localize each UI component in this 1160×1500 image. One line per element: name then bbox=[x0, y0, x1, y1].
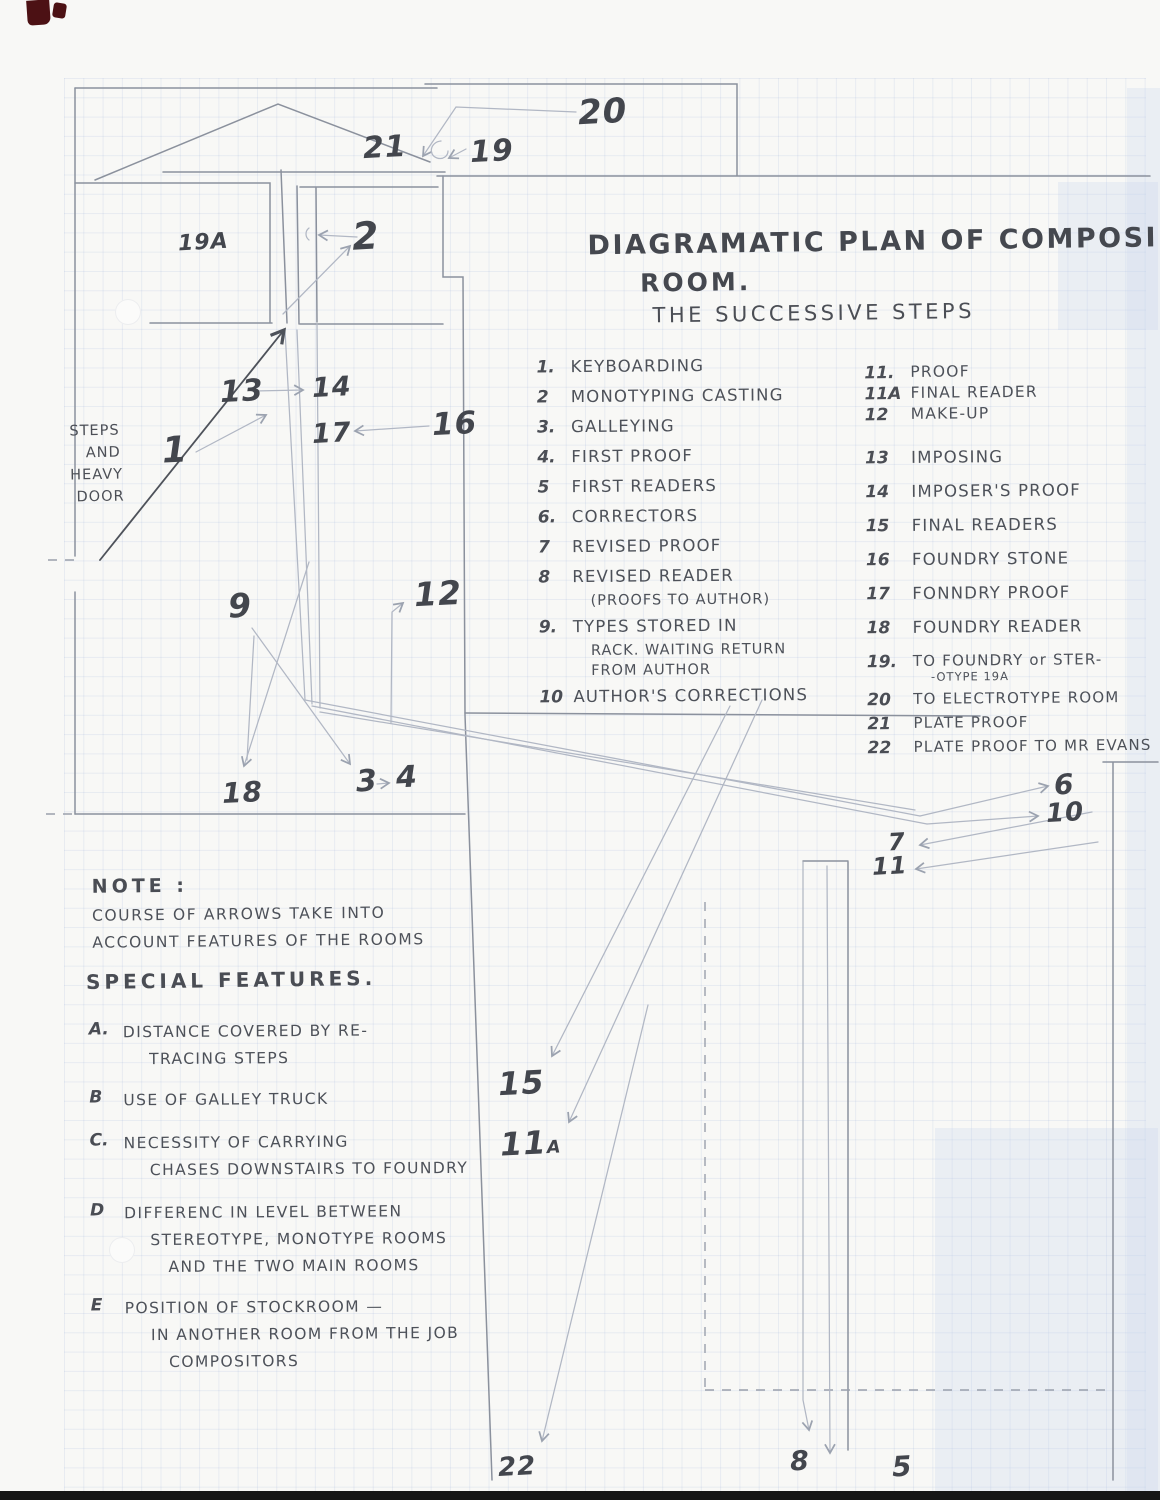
special-feature-lines: NECESSITY OF CARRYINGCHASES DOWNSTAIRS T… bbox=[124, 1128, 469, 1184]
step-item: 15FINAL READERS bbox=[866, 514, 1160, 537]
special-feature-item: BUSE OF GALLEY TRUCK bbox=[89, 1085, 519, 1115]
plan-label: 2 bbox=[351, 213, 381, 258]
red-corner-mark bbox=[26, 0, 51, 26]
margin-note-line: AND bbox=[70, 442, 124, 465]
step-label: PROOF bbox=[910, 362, 970, 383]
step-label: FINAL READERS bbox=[912, 515, 1058, 536]
plan-label: 8 bbox=[789, 1446, 810, 1478]
special-feature-lines: DISTANCE COVERED BY RE-TRACING STEPS bbox=[123, 1018, 369, 1074]
step-item: 9.TYPES STORED IN bbox=[539, 615, 869, 638]
note-line-2: ACCOUNT FEATURES OF THE ROOMS bbox=[92, 930, 425, 951]
step-number: 5 bbox=[537, 477, 571, 497]
special-feature-lines: DIFFERENC IN LEVEL BETWEENSTEREOTYPE, MO… bbox=[124, 1198, 448, 1281]
step-item: 20TO ELECTROTYPE ROOM bbox=[867, 688, 1160, 711]
scan-tint-bottom-right bbox=[935, 1128, 1158, 1492]
special-feature-line: TRACING STEPS bbox=[123, 1045, 369, 1074]
special-feature-line: DISTANCE COVERED BY RE- bbox=[123, 1018, 369, 1047]
steps-heavy-door-note: STEPSANDHEAVYDOOR bbox=[69, 420, 125, 509]
margin-note-line: STEPS bbox=[69, 420, 123, 443]
plan-label: 22 bbox=[497, 1451, 537, 1483]
step-item: 10AUTHOR'S CORRECTIONS bbox=[539, 685, 869, 708]
plan-label: 12 bbox=[413, 573, 463, 614]
hole-punch bbox=[115, 299, 141, 325]
special-feature-line: NECESSITY OF CARRYING bbox=[124, 1128, 469, 1157]
step-item: 11AFINAL READER bbox=[864, 382, 1160, 405]
step-item: 18FOUNDRY READER bbox=[866, 616, 1160, 639]
step-number: 18 bbox=[866, 618, 912, 638]
plan-label: 15 bbox=[497, 1063, 545, 1103]
special-feature-line: STEREOTYPE, MONOTYPE ROOMS bbox=[124, 1225, 447, 1254]
step-item: 1.KEYBOARDING bbox=[536, 355, 866, 378]
special-feature-item: C.NECESSITY OF CARRYINGCHASES DOWNSTAIRS… bbox=[90, 1128, 520, 1185]
step-label: MAKE-UP bbox=[911, 404, 990, 425]
step-number: 15 bbox=[866, 516, 912, 536]
plan-label: 16 bbox=[431, 405, 478, 443]
step-number: 20 bbox=[867, 690, 913, 710]
step-item: 6.CORRECTORS bbox=[538, 505, 868, 528]
scanned-plan-page: DIAGRAMATIC PLAN OF COMPOSING ROOM. THE … bbox=[0, 0, 1160, 1500]
step-item: 8REVISED READER bbox=[538, 565, 868, 588]
step-item: 14IMPOSER'S PROOF bbox=[865, 480, 1160, 503]
step-number: 13 bbox=[865, 448, 911, 468]
step-label: IMPOSER'S PROOF bbox=[911, 480, 1081, 501]
plan-label: 4 bbox=[395, 759, 419, 795]
scan-edge-bar bbox=[0, 1491, 1160, 1500]
step-number: 17 bbox=[866, 584, 912, 604]
plan-label: 19 bbox=[469, 133, 515, 170]
step-number: 11A bbox=[864, 384, 910, 404]
special-feature-item: EPOSITION OF STOCKROOM —IN ANOTHER ROOM … bbox=[91, 1292, 522, 1376]
special-feature-letter: E bbox=[91, 1295, 126, 1376]
special-feature-item: DDIFFERENC IN LEVEL BETWEENSTEREOTYPE, M… bbox=[90, 1197, 521, 1281]
special-feature-line: COMPOSITORS bbox=[125, 1347, 459, 1376]
plan-label: 5 bbox=[891, 1449, 913, 1483]
plan-label: 11 bbox=[871, 851, 908, 881]
step-label: REVISED PROOF bbox=[572, 536, 722, 557]
step-label: KEYBOARDING bbox=[570, 356, 704, 377]
margin-note-line: HEAVY bbox=[70, 464, 124, 487]
step-label: FOUNDRY READER bbox=[912, 616, 1082, 637]
step-sublabel: (PROOFS TO AUTHOR) bbox=[590, 591, 868, 609]
step-sublabel: FROM AUTHOR bbox=[591, 661, 869, 679]
special-feature-letter: D bbox=[90, 1200, 125, 1281]
step-label: GALLEYING bbox=[571, 416, 675, 437]
special-feature-line: DIFFERENC IN LEVEL BETWEEN bbox=[124, 1198, 447, 1227]
step-item: 17FONNDRY PROOF bbox=[866, 582, 1160, 605]
special-features-heading: SPECIAL FEATURES. bbox=[86, 966, 377, 994]
special-feature-line: POSITION OF STOCKROOM — bbox=[125, 1293, 459, 1322]
plan-label: 9 bbox=[227, 585, 253, 625]
plan-label: 1 bbox=[161, 429, 189, 471]
plan-label: 19A bbox=[177, 229, 229, 257]
step-number: 6. bbox=[538, 507, 572, 527]
diagram-title: DIAGRAMATIC PLAN OF COMPOSING ROOM. THE … bbox=[587, 222, 1160, 329]
step-label: FOUNDRY STONE bbox=[912, 549, 1069, 570]
special-feature-line: CHASES DOWNSTAIRS TO FOUNDRY bbox=[124, 1155, 469, 1184]
step-label: AUTHOR'S CORRECTIONS bbox=[573, 685, 808, 707]
steps-list-left: 1.KEYBOARDING2MONOTYPING CASTING3.GALLEY… bbox=[536, 355, 869, 718]
note-block: NOTE : COURSE OF ARROWS TAKE INTO ACCOUN… bbox=[92, 872, 425, 951]
step-item: 5FIRST READERS bbox=[537, 475, 867, 498]
red-corner-mark bbox=[52, 2, 67, 19]
step-label: REVISED READER bbox=[572, 566, 734, 587]
title-line-2: ROOM. bbox=[640, 261, 1160, 298]
step-label: TYPES STORED IN bbox=[573, 616, 738, 637]
special-feature-letter: C. bbox=[90, 1130, 124, 1184]
special-feature-line: AND THE TWO MAIN ROOMS bbox=[124, 1252, 447, 1281]
step-number: 12 bbox=[865, 405, 911, 425]
step-label: FINAL READER bbox=[910, 383, 1037, 404]
plan-label: 11A bbox=[499, 1122, 562, 1163]
plan-label: 17 bbox=[311, 417, 352, 450]
step-number: 9. bbox=[539, 617, 573, 637]
plan-label: 18 bbox=[221, 775, 264, 810]
step-label: PLATE PROOF TO MR EVANS bbox=[914, 736, 1152, 758]
special-feature-line: IN ANOTHER ROOM FROM THE JOB bbox=[125, 1320, 459, 1349]
plan-label: 6 bbox=[1053, 767, 1075, 801]
special-features-list: A.DISTANCE COVERED BY RE-TRACING STEPSBU… bbox=[89, 1017, 521, 1377]
plan-label: 13 bbox=[219, 373, 265, 410]
plan-label-suffix: A bbox=[546, 1137, 562, 1158]
step-item: 21PLATE PROOF bbox=[867, 712, 1160, 735]
plan-label: 14 bbox=[311, 371, 352, 404]
plan-label: 20 bbox=[577, 91, 628, 134]
step-number: 4. bbox=[537, 447, 571, 467]
step-number: 8 bbox=[538, 567, 572, 587]
step-item: 13IMPOSING bbox=[865, 446, 1160, 469]
step-number: 19. bbox=[867, 652, 913, 672]
step-item: 22PLATE PROOF TO MR EVANS bbox=[868, 736, 1160, 759]
step-label: FIRST READERS bbox=[571, 476, 717, 497]
step-item: 2MONOTYPING CASTING bbox=[537, 385, 867, 408]
step-number: 7 bbox=[538, 537, 572, 557]
step-item: 12MAKE-UP bbox=[865, 403, 1160, 426]
special-feature-item: A.DISTANCE COVERED BY RE-TRACING STEPS bbox=[89, 1017, 519, 1074]
step-number: 21 bbox=[867, 714, 913, 734]
step-item: 3.GALLEYING bbox=[537, 415, 867, 438]
step-number: 3. bbox=[537, 417, 571, 437]
special-feature-line: USE OF GALLEY TRUCK bbox=[123, 1086, 328, 1114]
step-label: FONNDRY PROOF bbox=[912, 583, 1070, 604]
note-line-1: COURSE OF ARROWS TAKE INTO bbox=[92, 903, 425, 924]
note-heading: NOTE : bbox=[92, 872, 425, 897]
step-number: 11. bbox=[864, 363, 910, 383]
step-item: 7REVISED PROOF bbox=[538, 535, 868, 558]
step-number: 1. bbox=[536, 357, 570, 377]
step-label: TO ELECTROTYPE ROOM bbox=[913, 688, 1119, 710]
step-item: 16FOUNDRY STONE bbox=[866, 548, 1160, 571]
step-label: IMPOSING bbox=[911, 447, 1003, 468]
step-label: CORRECTORS bbox=[572, 506, 699, 527]
step-sublabel: RACK. WAITING RETURN bbox=[591, 641, 869, 659]
margin-note-line: DOOR bbox=[70, 486, 124, 509]
step-label: FIRST PROOF bbox=[571, 446, 693, 467]
step-number: 16 bbox=[866, 550, 912, 570]
special-feature-lines: POSITION OF STOCKROOM —IN ANOTHER ROOM F… bbox=[125, 1293, 460, 1376]
step-number: 10 bbox=[539, 687, 573, 707]
plan-label: 10 bbox=[1045, 797, 1085, 829]
step-number: 2 bbox=[537, 387, 571, 407]
plan-label: 3 bbox=[355, 763, 379, 799]
special-feature-letter: A. bbox=[89, 1019, 123, 1073]
step-label: MONOTYPING CASTING bbox=[571, 385, 784, 407]
step-item: 4.FIRST PROOF bbox=[537, 445, 867, 468]
step-item: 11.PROOF bbox=[864, 361, 1160, 384]
plan-label: 21 bbox=[362, 129, 408, 166]
step-label: PLATE PROOF bbox=[913, 713, 1028, 734]
special-feature-letter: B bbox=[89, 1087, 123, 1114]
special-feature-lines: USE OF GALLEY TRUCK bbox=[123, 1086, 328, 1114]
step-number: 14 bbox=[865, 482, 911, 502]
step-number: 22 bbox=[868, 738, 914, 758]
steps-list-right: 11.PROOF11AFINAL READER12MAKE-UP13IMPOSI… bbox=[864, 361, 1160, 763]
